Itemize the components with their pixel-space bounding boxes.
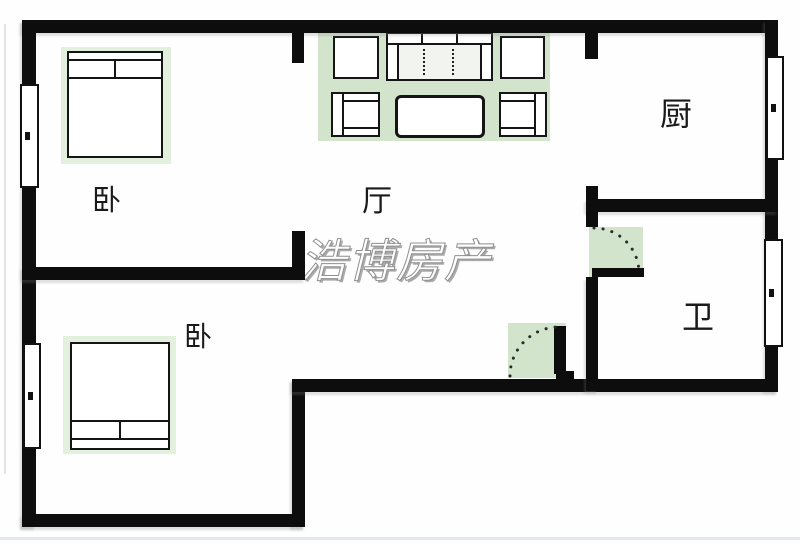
pillow-icon bbox=[72, 422, 119, 438]
pillow-icon bbox=[119, 422, 168, 438]
coffee-table-icon bbox=[395, 95, 485, 138]
window-handle bbox=[25, 132, 30, 140]
window-icon-kitchen bbox=[766, 56, 784, 160]
sofa-back-cushion bbox=[421, 34, 456, 43]
bed-mattress bbox=[72, 344, 168, 420]
wall-top bbox=[22, 20, 778, 33]
chair-armrest bbox=[501, 94, 534, 102]
sofa-back-cushion bbox=[388, 34, 421, 43]
side-table-icon-right bbox=[500, 36, 545, 79]
chair-seat bbox=[344, 102, 378, 127]
window-icon-bedroom-bottom bbox=[23, 343, 41, 449]
bed-pillows bbox=[72, 420, 168, 438]
window-handle bbox=[28, 392, 33, 400]
armchair-icon-right bbox=[499, 92, 547, 137]
window-handle bbox=[769, 289, 774, 297]
armchair-icon-left bbox=[331, 92, 380, 137]
floor-plan: 卧 厅 厨 卧 卫 浩博房产 bbox=[0, 0, 800, 544]
room-label-bedroom-bottom: 卧 bbox=[184, 323, 212, 351]
wall-bedroom-divider bbox=[22, 267, 305, 280]
chair-backrest bbox=[534, 94, 545, 135]
window-icon-bathroom bbox=[764, 239, 783, 347]
wall-bedroom-bottom-bottom bbox=[22, 514, 305, 527]
room-label-bedroom-top: 卧 bbox=[92, 187, 121, 216]
entry-door-hinge bbox=[556, 371, 574, 382]
window-icon-bedroom-top bbox=[20, 84, 39, 188]
room-label-living-room: 厅 bbox=[362, 187, 392, 217]
side-table-icon-left bbox=[333, 36, 379, 79]
sofa-backrest bbox=[388, 34, 491, 45]
chair-seat bbox=[501, 102, 534, 127]
sofa-seat bbox=[399, 45, 480, 79]
pillow-icon bbox=[114, 61, 161, 77]
chair-armrest bbox=[344, 127, 378, 135]
wall-kitchen-entry-stub bbox=[585, 33, 598, 59]
scan-edge-left bbox=[4, 24, 6, 474]
room-label-kitchen: 厨 bbox=[660, 98, 692, 130]
sofa-armrest-left bbox=[388, 45, 399, 79]
wall-living-bottom bbox=[292, 379, 778, 392]
watermark: 浩博房产 bbox=[300, 238, 492, 284]
bed-headboard bbox=[69, 53, 161, 61]
sofa-armrest-right bbox=[480, 45, 491, 79]
sofa-back-cushion bbox=[456, 34, 491, 43]
window-handle bbox=[771, 104, 776, 112]
wall-bathroom-left-upper bbox=[586, 186, 598, 227]
sofa-seat-divider bbox=[452, 49, 454, 75]
chair-armrest bbox=[344, 94, 378, 102]
bed-icon-top bbox=[67, 51, 163, 158]
scan-edge-bottom bbox=[0, 537, 800, 540]
pillow-icon bbox=[69, 61, 114, 77]
bed-icon-bottom bbox=[70, 342, 170, 450]
wall-bathroom-left-lower bbox=[586, 277, 598, 391]
bed-mattress bbox=[69, 79, 161, 156]
bed-pillows bbox=[69, 61, 161, 79]
bathroom-door-leaf bbox=[592, 268, 644, 277]
entry-door-leaf bbox=[554, 326, 566, 374]
sofa-icon bbox=[386, 32, 493, 81]
wall-divider-stub bbox=[292, 231, 305, 280]
bed-headboard bbox=[72, 438, 168, 448]
chair-armrest bbox=[501, 127, 534, 135]
chair-backrest bbox=[333, 94, 344, 135]
sofa-seat-divider bbox=[423, 49, 425, 75]
room-label-bathroom: 卫 bbox=[682, 301, 714, 333]
wall-bedroom-bottom-right bbox=[292, 379, 305, 527]
wall-kitchen-bottom bbox=[586, 199, 778, 212]
wall-bedroom-top-entry-stub bbox=[292, 33, 304, 63]
